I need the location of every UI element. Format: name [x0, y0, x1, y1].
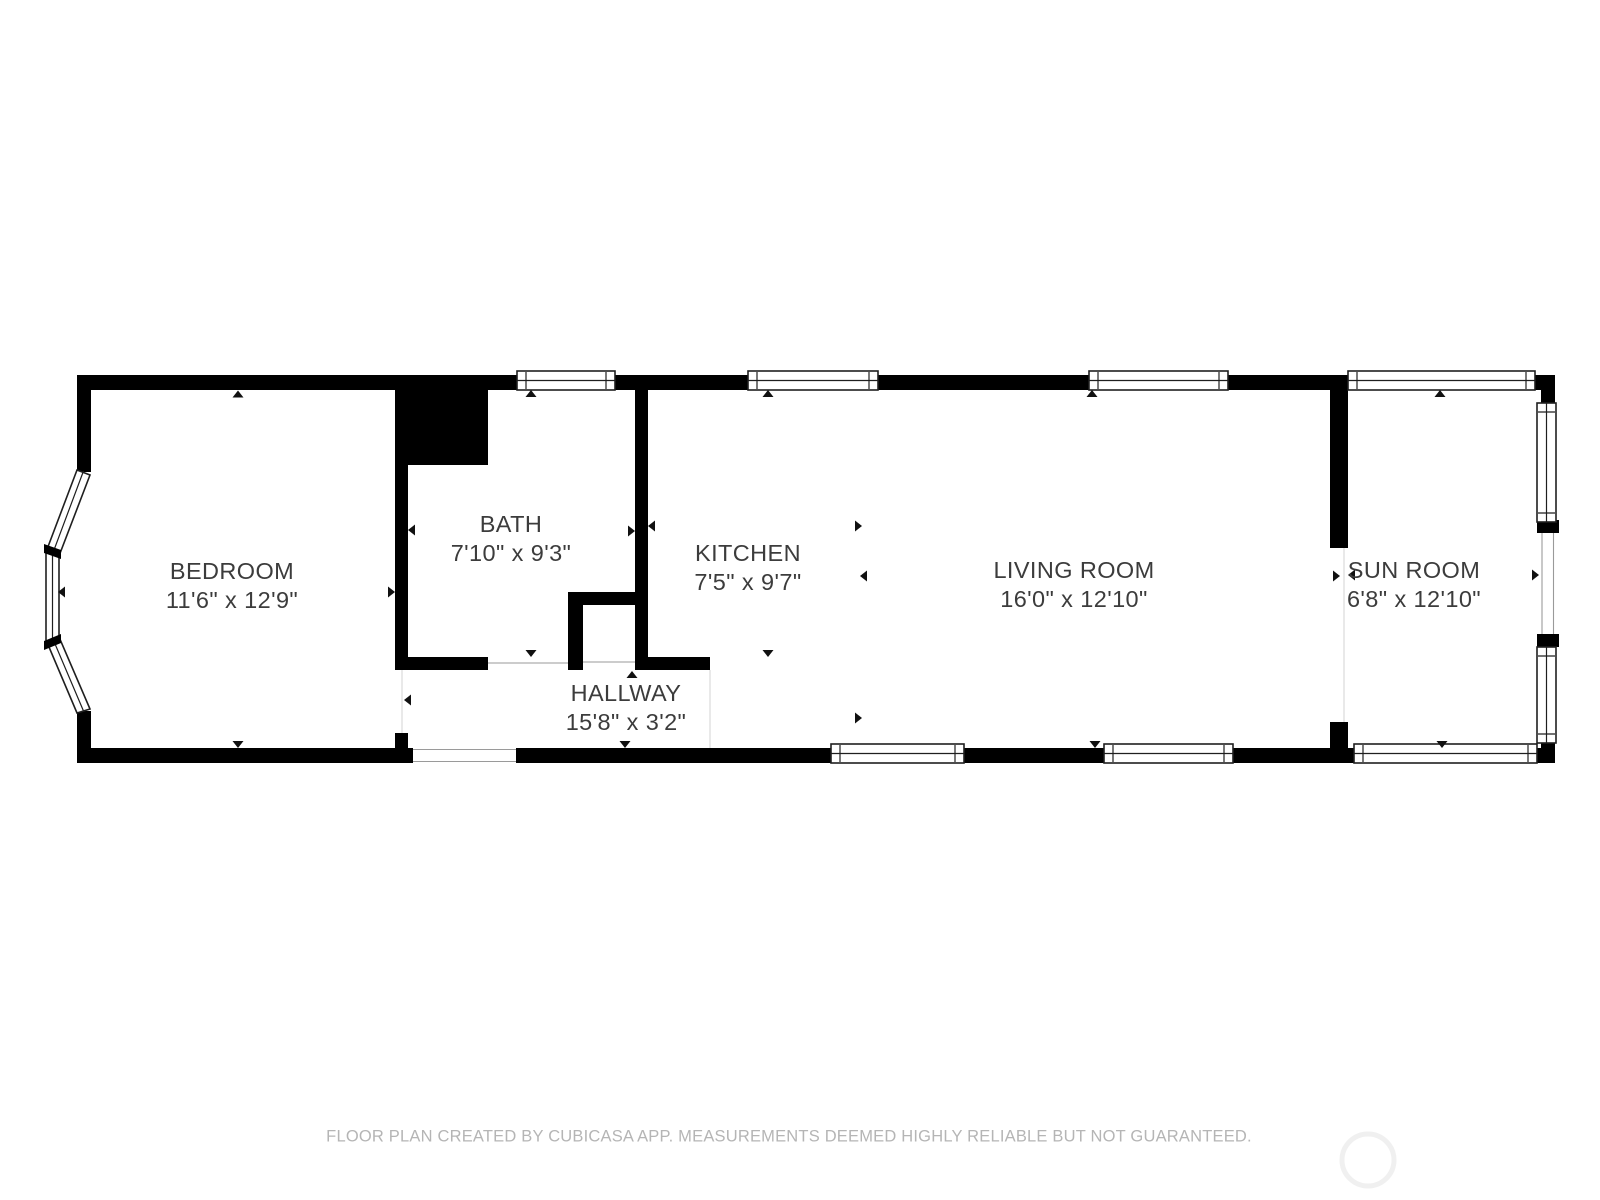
room-dimensions: 16'0" x 12'10" [993, 585, 1154, 614]
opening-arrow-up [233, 391, 244, 398]
bedroom-wall-stub [395, 733, 408, 748]
window-living-bottom-1 [831, 744, 964, 763]
bay-window [44, 470, 90, 713]
room-dimensions: 11'6" x 12'9" [166, 586, 298, 615]
room-name: HALLWAY [566, 679, 687, 708]
room-label-bedroom: BEDROOM 11'6" x 12'9" [166, 557, 298, 615]
window-bath-top [517, 371, 615, 390]
opening-arrow-down [763, 650, 774, 657]
room-name: LIVING ROOM [993, 556, 1154, 585]
bath-door-opening [488, 657, 568, 670]
opening-arrow-right [855, 521, 862, 532]
living-sunroom-wall-upper [1330, 388, 1348, 548]
room-dimensions: 6'8" x 12'10" [1347, 585, 1481, 614]
window-sunroom-top [1348, 371, 1535, 390]
room-label-hallway: HALLWAY 15'8" x 3'2" [566, 679, 687, 737]
floor-plan-page: BEDROOM 11'6" x 12'9" BATH 7'10" x 9'3" … [0, 0, 1600, 1200]
opening-arrow-left [404, 695, 411, 706]
bath-solid-block [395, 375, 488, 465]
window-sunroom-right-lower [1537, 647, 1556, 743]
room-name: BEDROOM [166, 557, 298, 586]
room-dimensions: 15'8" x 3'2" [566, 708, 687, 737]
left-wall-upper [77, 375, 91, 472]
footer-disclaimer: FLOOR PLAN CREATED BY CUBICASA APP. MEAS… [326, 1128, 1252, 1147]
right-wall-top-corner [1541, 375, 1555, 405]
sunroom-door-opening [1541, 533, 1555, 634]
front-door-opening [413, 748, 516, 763]
opening-arrow-up [1087, 390, 1098, 397]
opening-arrow-right [1333, 571, 1340, 582]
bottom-wall [77, 748, 1555, 763]
room-label-living-room: LIVING ROOM 16'0" x 12'10" [993, 556, 1154, 614]
closet-left-wall [568, 605, 583, 670]
opening-arrow-left [408, 525, 415, 536]
closet-top-wall [568, 592, 648, 605]
kitchen-bottom-wall [635, 657, 710, 670]
opening-arrow-up [526, 390, 537, 397]
living-sunroom-wall-stub [1330, 722, 1348, 748]
room-label-sun-room: SUN ROOM 6'8" x 12'10" [1347, 556, 1481, 614]
opening-arrow-up [1435, 390, 1446, 397]
opening-arrow-down [620, 741, 631, 748]
opening-arrow-down [526, 650, 537, 657]
window-sunroom-right-upper [1537, 403, 1556, 522]
opening-arrow-right [628, 526, 635, 537]
room-dimensions: 7'10" x 9'3" [451, 539, 572, 568]
room-label-kitchen: KITCHEN 7'5" x 9'7" [694, 539, 801, 597]
opening-arrow-up [627, 671, 638, 678]
window-sunroom-bottom [1354, 744, 1537, 763]
room-name: SUN ROOM [1347, 556, 1481, 585]
opening-arrow-right [1532, 570, 1539, 581]
opening-arrow-left [648, 521, 655, 532]
right-wall-bottom-corner [1541, 741, 1555, 763]
window-living-top [1089, 371, 1228, 390]
opening-arrow-up [763, 390, 774, 397]
room-dimensions: 7'5" x 9'7" [694, 568, 801, 597]
opening-arrow-right [388, 587, 395, 598]
cubicasa-watermark-circle [1342, 1134, 1394, 1186]
window-living-bottom-2 [1104, 744, 1233, 763]
room-name: KITCHEN [694, 539, 801, 568]
room-name: BATH [451, 510, 572, 539]
closet-opening [583, 657, 635, 670]
right-wall-cap-lower [1537, 634, 1559, 647]
room-label-bath: BATH 7'10" x 9'3" [451, 510, 572, 568]
opening-arrow-down [1090, 741, 1101, 748]
left-wall-lower [77, 711, 91, 763]
opening-arrow-right [855, 713, 862, 724]
opening-arrow-down [233, 741, 244, 748]
opening-arrow-left [860, 571, 867, 582]
window-kitchen-top [748, 371, 878, 390]
bath-bottom-wall [395, 657, 488, 670]
bath-kitchen-wall [635, 385, 648, 670]
